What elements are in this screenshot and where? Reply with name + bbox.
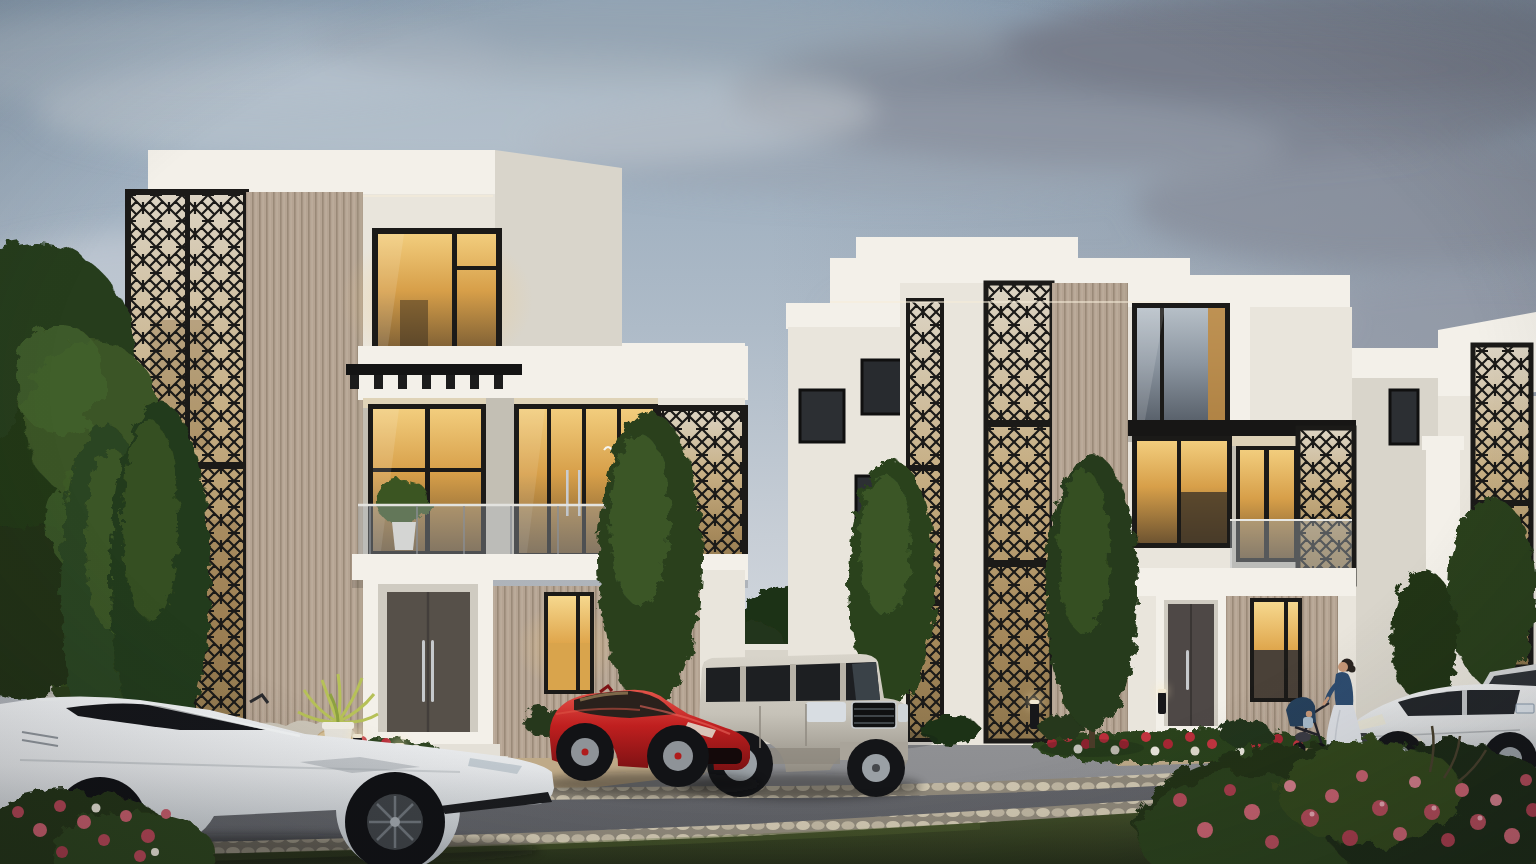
vignette — [0, 0, 1536, 864]
villa-render-scene — [0, 0, 1536, 864]
render-canvas — [0, 0, 1536, 864]
